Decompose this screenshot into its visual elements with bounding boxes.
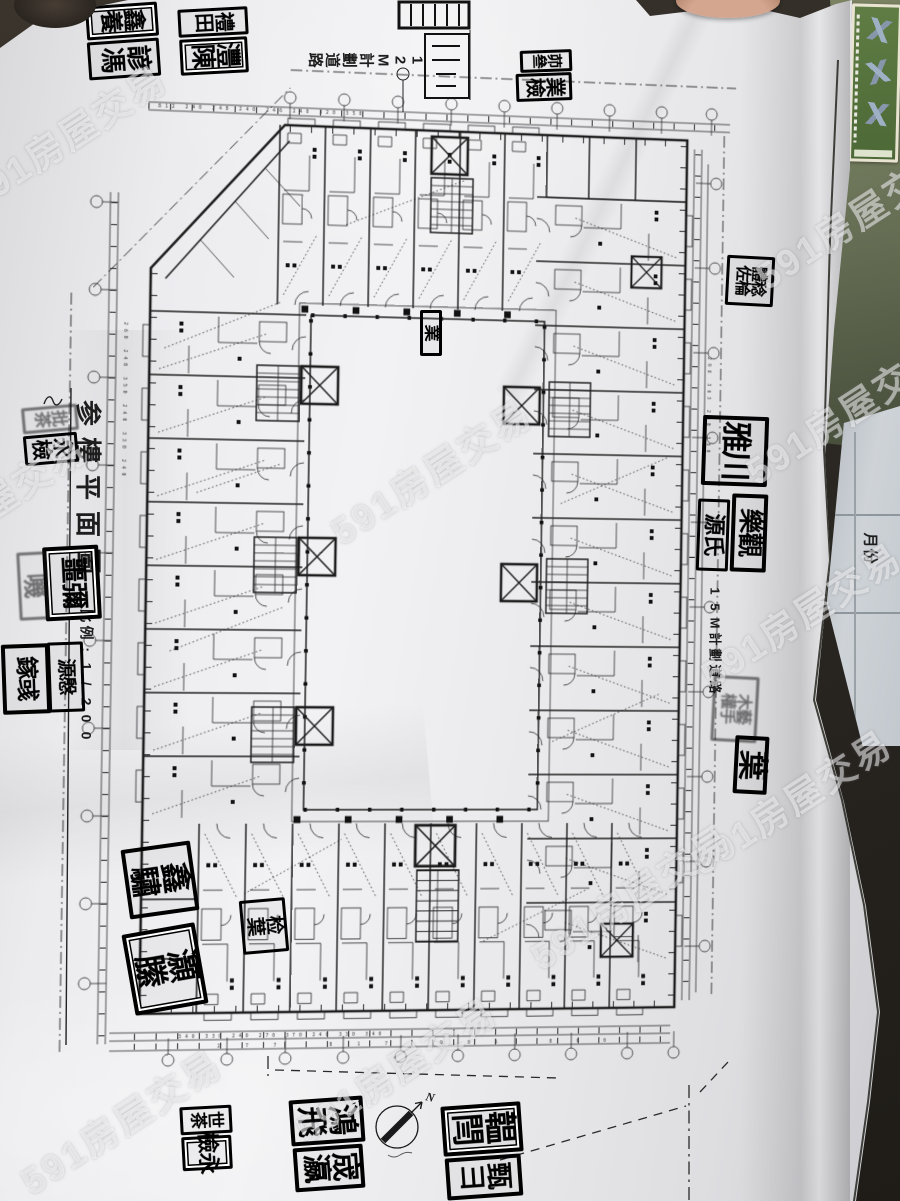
stamp-figure-icon	[864, 16, 894, 43]
seal-stamp: 養鑫	[85, 2, 159, 41]
seal-stamp: 佐體棆稔	[725, 255, 776, 307]
seal-stamp: 鎵彧	[1, 643, 51, 715]
seal-stamp: 嘰	[16, 551, 50, 620]
svg-text:260 240 350 240 330 240: 260 240 350 240 330 240	[120, 322, 128, 480]
seal-stamp: 彐甄	[445, 1153, 524, 1200]
seal-stamp: 飛鴻	[288, 1095, 365, 1146]
seal-stamp: 葉检	[239, 897, 290, 955]
seal-stamp: 雅川	[701, 415, 769, 487]
postage-stamp	[848, 3, 900, 162]
blueprint-paper: 812 240 248 240 246 240 320 350 340 330 …	[0, 0, 900, 1201]
svg-text:N: N	[423, 1089, 437, 1105]
svg-text:812 240 248 240 246 240 320 35: 812 240 248 240 246 240 320 350	[158, 103, 365, 117]
seal-stamp: 葉	[733, 735, 770, 795]
stamp-text-bar	[853, 14, 859, 142]
seal-stamp: 檢永	[181, 1135, 233, 1172]
seal-stamp: 叄茆	[520, 49, 573, 73]
seal-stamp: 檢永	[23, 432, 79, 467]
seal-stamp: 縢灝	[121, 922, 208, 1016]
form-rule-line	[834, 514, 900, 516]
photo-scene: 月份	[0, 0, 900, 1201]
form-rule-line	[834, 612, 900, 614]
seal-stamp: 閆韞	[440, 1101, 523, 1156]
form-month-label: 月份	[862, 532, 877, 564]
form-column-line	[854, 432, 856, 730]
seal-stamp: 源慇	[47, 641, 85, 712]
stamp-bottom-band	[854, 149, 892, 157]
seal-stamp: 源氏	[696, 498, 730, 571]
seal-stamp: 樂觀	[730, 493, 769, 572]
road-label-12m: 12M計劃道路	[306, 52, 425, 68]
seal-stamp: 馮諺	[87, 38, 161, 81]
seal-stamp: 茶批	[21, 404, 79, 435]
stamp-figure-icon	[863, 101, 892, 126]
svg-text:277 817 905 860: 277 817 905 860	[217, 1038, 630, 1050]
seal-stamp: 瀛宬	[293, 1144, 366, 1193]
seal-stamp: 檢業	[516, 72, 573, 102]
seal-stamp: 噩彌	[42, 545, 102, 622]
seal-stamp: 陳灃	[179, 36, 249, 76]
seal-stamp: 田禮	[177, 6, 248, 38]
seal-stamp: 權木手藝	[710, 675, 759, 743]
postage-stamp-artwork	[851, 6, 899, 159]
stamp-figure-icon	[863, 59, 893, 86]
seal-stamp: 業	[420, 310, 442, 356]
seal-stamp: 驌鑫	[120, 840, 199, 919]
